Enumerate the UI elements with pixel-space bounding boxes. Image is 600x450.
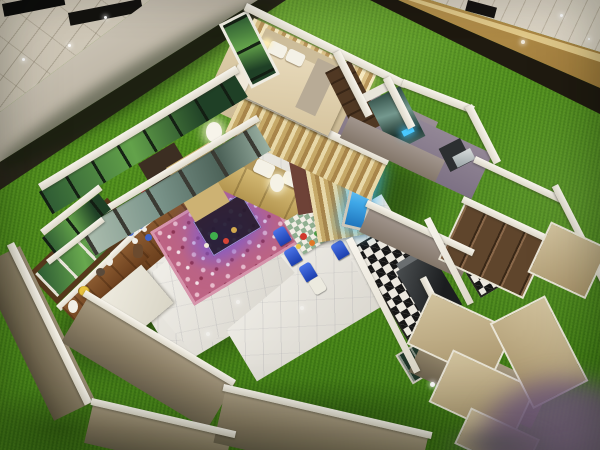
deck-glint [430,382,435,387]
deck-slab [530,224,600,296]
right-balcony-cap-top [473,156,565,204]
photo-scene [0,0,600,450]
